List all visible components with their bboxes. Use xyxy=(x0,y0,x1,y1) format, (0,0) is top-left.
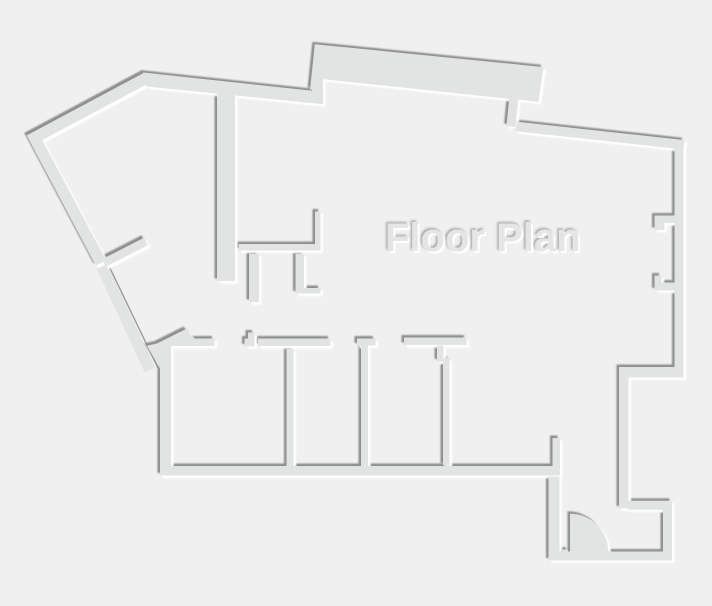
svg-text:Floor Plan: Floor Plan xyxy=(385,216,581,260)
